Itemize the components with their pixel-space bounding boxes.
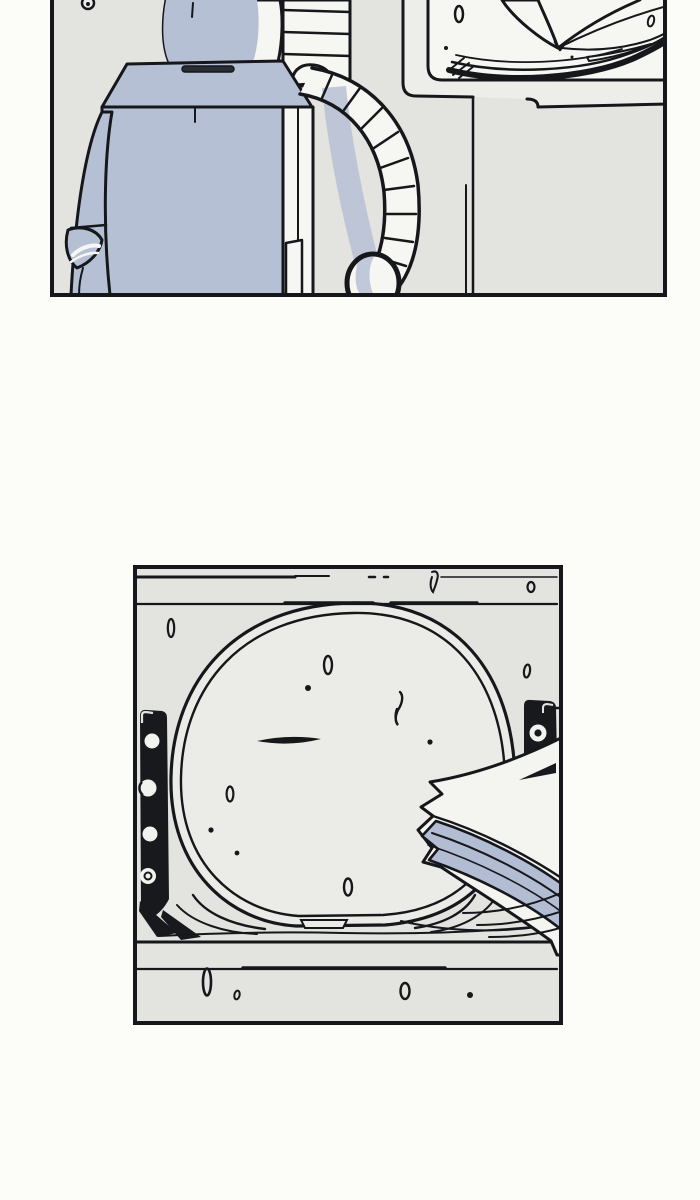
comic-page xyxy=(0,0,700,1200)
robot-head-shade xyxy=(163,0,258,62)
wall-screw xyxy=(82,0,94,9)
panel-robot-at-desk xyxy=(50,0,667,297)
panel-2-illustration xyxy=(133,565,563,1025)
panel-1-illustration xyxy=(50,0,667,297)
panel-hatch-with-papers xyxy=(133,565,563,1025)
torso-back xyxy=(102,107,283,295)
latch-tab xyxy=(301,920,347,928)
wall-speckle xyxy=(467,992,473,998)
wall-speckle xyxy=(203,969,211,996)
hinge-bolt xyxy=(145,734,160,749)
wall-speckle xyxy=(234,990,241,1000)
wall-speckle xyxy=(571,56,574,59)
wall-speckle xyxy=(528,582,535,592)
torso-slot xyxy=(182,66,234,72)
hinge-bolt xyxy=(140,868,156,884)
wall-speckle xyxy=(401,983,410,999)
wall-speckle xyxy=(444,46,448,50)
hinge-bolt xyxy=(143,827,158,842)
wall-speckle xyxy=(455,6,463,22)
